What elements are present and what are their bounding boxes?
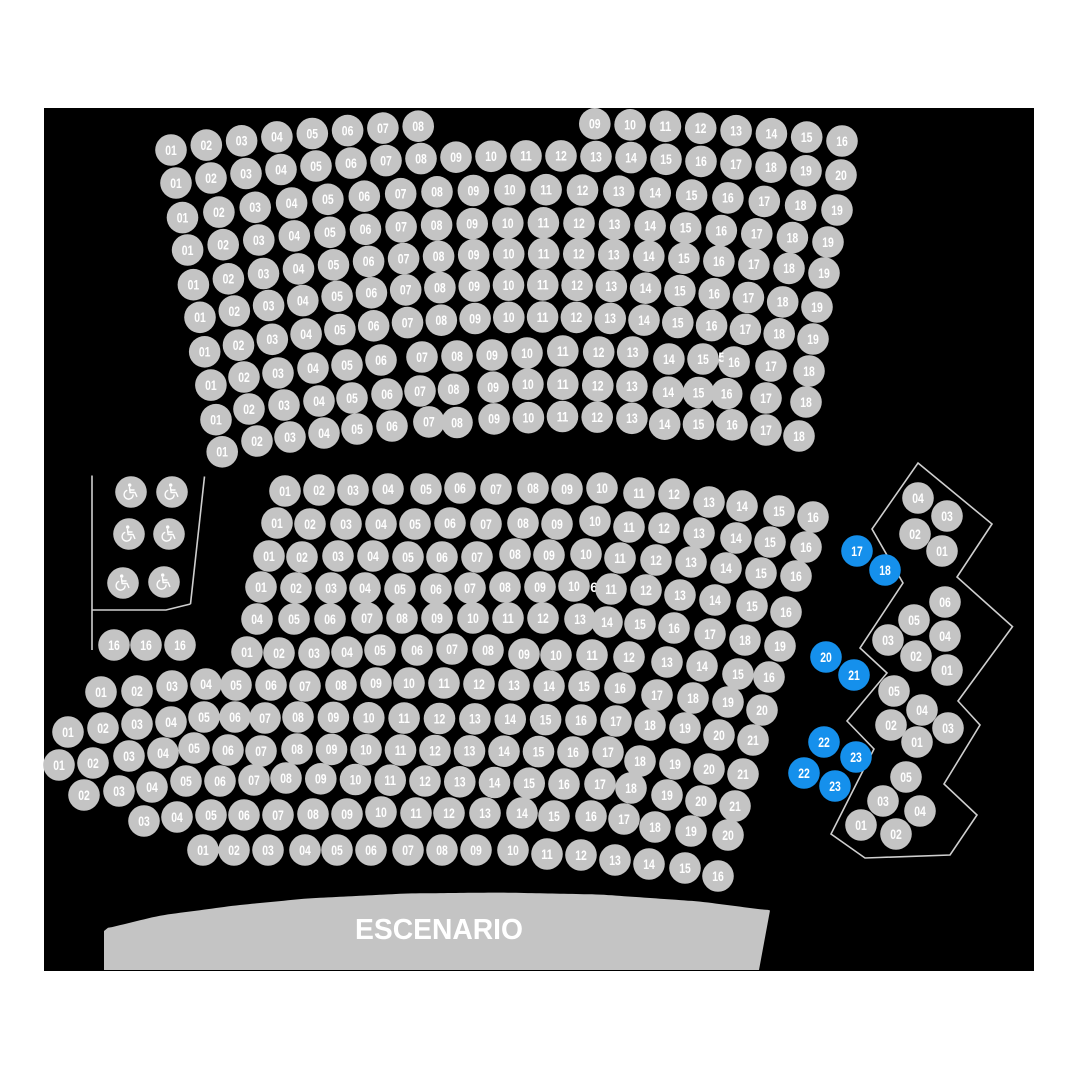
svg-text:06: 06 [359, 189, 371, 204]
svg-text:11: 11 [537, 310, 549, 325]
svg-text:02: 02 [131, 684, 143, 699]
svg-text:15: 15 [732, 667, 744, 682]
svg-text:22: 22 [798, 766, 810, 781]
svg-text:03: 03 [263, 298, 275, 313]
svg-text:08: 08 [509, 547, 521, 562]
svg-text:05: 05 [908, 613, 920, 628]
svg-text:04: 04 [382, 482, 394, 497]
svg-text:16: 16 [695, 154, 707, 169]
svg-text:12: 12 [575, 848, 587, 863]
svg-text:01: 01 [255, 580, 267, 595]
svg-text:06: 06 [366, 286, 378, 301]
svg-text:19: 19 [822, 235, 834, 250]
svg-text:02: 02 [228, 843, 240, 858]
svg-text:14: 14 [643, 249, 655, 264]
svg-text:10: 10 [522, 377, 534, 392]
svg-text:17: 17 [760, 391, 772, 406]
svg-text:21: 21 [747, 733, 759, 748]
svg-text:15: 15 [533, 744, 545, 759]
svg-text:14: 14 [709, 593, 721, 608]
svg-text:16: 16 [108, 638, 120, 653]
svg-text:02: 02 [233, 338, 245, 353]
svg-text:14: 14 [516, 806, 528, 821]
svg-text:07: 07 [423, 415, 435, 430]
svg-text:11: 11 [384, 773, 396, 788]
svg-text:10: 10 [523, 411, 535, 426]
svg-text:10: 10 [375, 805, 387, 820]
svg-text:14: 14 [640, 281, 652, 296]
svg-text:09: 09 [470, 843, 482, 858]
svg-text:09: 09 [466, 217, 478, 232]
svg-text:04: 04 [293, 262, 305, 277]
svg-text:04: 04 [200, 677, 212, 692]
svg-text:13: 13 [626, 379, 638, 394]
svg-text:04: 04 [300, 327, 312, 342]
svg-text:18: 18 [783, 261, 795, 276]
svg-text:15: 15 [693, 417, 705, 432]
svg-text:16: 16 [763, 670, 775, 685]
svg-text:16: 16 [722, 191, 734, 206]
svg-text:04: 04 [341, 645, 353, 660]
svg-text:02: 02 [885, 718, 897, 733]
svg-text:07: 07 [299, 679, 311, 694]
svg-text:07: 07 [395, 187, 407, 202]
svg-text:15: 15 [540, 712, 552, 727]
svg-text:02: 02 [251, 434, 263, 449]
svg-text:11: 11 [438, 676, 450, 691]
svg-text:09: 09 [315, 772, 327, 787]
svg-text:01: 01 [194, 310, 206, 325]
svg-text:15: 15 [773, 504, 785, 519]
svg-text:01: 01 [263, 549, 275, 564]
svg-text:20: 20 [820, 650, 832, 665]
svg-text:05: 05 [310, 159, 322, 174]
svg-text:07: 07 [361, 611, 373, 626]
svg-text:16: 16 [721, 387, 733, 402]
svg-text:08: 08 [335, 678, 347, 693]
svg-text:13: 13 [469, 712, 481, 727]
svg-text:06: 06 [345, 156, 357, 171]
svg-text:04: 04 [271, 130, 283, 145]
svg-text:18: 18 [649, 820, 661, 835]
svg-text:03: 03 [236, 134, 248, 149]
svg-text:12: 12 [573, 247, 585, 262]
svg-text:10: 10 [589, 514, 601, 529]
svg-text:01: 01 [188, 278, 200, 293]
svg-text:03: 03 [278, 398, 290, 413]
svg-text:07: 07 [400, 283, 412, 298]
svg-text:20: 20 [835, 168, 847, 183]
svg-text:02: 02 [296, 550, 308, 565]
svg-text:17: 17 [594, 777, 606, 792]
svg-text:12: 12 [640, 583, 652, 598]
svg-text:08: 08 [499, 580, 511, 595]
svg-text:09: 09 [328, 710, 340, 725]
svg-text:01: 01 [941, 663, 953, 678]
svg-text:05: 05 [402, 550, 414, 565]
svg-text:08: 08 [291, 742, 303, 757]
svg-text:05: 05 [888, 684, 900, 699]
svg-text:11: 11 [538, 216, 550, 231]
svg-text:03: 03 [123, 749, 135, 764]
svg-text:14: 14 [649, 186, 661, 201]
svg-text:03: 03 [258, 266, 270, 281]
svg-text:11: 11 [605, 582, 617, 597]
svg-text:05: 05 [328, 258, 340, 273]
svg-text:15: 15 [697, 352, 709, 367]
svg-text:12: 12 [577, 183, 589, 198]
svg-text:14: 14 [696, 659, 708, 674]
svg-text:13: 13 [627, 345, 639, 360]
svg-text:06: 06 [342, 123, 354, 138]
svg-text:03: 03 [877, 794, 889, 809]
svg-text:02: 02 [97, 721, 109, 736]
svg-text:05: 05 [346, 391, 358, 406]
svg-text:17: 17 [740, 322, 752, 337]
svg-text:03: 03 [138, 814, 150, 829]
svg-text:08: 08 [434, 280, 446, 295]
svg-text:15: 15 [693, 385, 705, 400]
svg-text:18: 18 [795, 198, 807, 213]
svg-text:02: 02 [201, 138, 213, 153]
svg-text:06: 06 [939, 595, 951, 610]
svg-text:01: 01 [170, 176, 182, 191]
svg-text:02: 02 [205, 171, 217, 186]
svg-text:04: 04 [313, 394, 325, 409]
svg-text:06: 06 [365, 843, 377, 858]
svg-text:11: 11 [660, 119, 672, 134]
svg-text:01: 01 [279, 484, 291, 499]
svg-text:13: 13 [609, 853, 621, 868]
svg-text:05: 05 [324, 225, 336, 240]
svg-text:08: 08 [451, 349, 463, 364]
svg-text:08: 08 [451, 415, 463, 430]
svg-text:09: 09 [469, 311, 481, 326]
svg-text:19: 19 [818, 266, 830, 281]
svg-text:01: 01 [62, 725, 74, 740]
svg-text:12: 12 [623, 650, 635, 665]
svg-text:06: 06 [430, 582, 442, 597]
svg-text:06: 06 [444, 516, 456, 531]
svg-text:10: 10 [596, 481, 608, 496]
svg-text:03: 03 [942, 721, 954, 736]
svg-text:12: 12 [592, 379, 604, 394]
svg-text:02: 02 [290, 581, 302, 596]
svg-text:10: 10 [403, 676, 415, 691]
svg-text:02: 02 [910, 649, 922, 664]
svg-text:05: 05 [334, 322, 346, 337]
svg-text:08: 08 [448, 382, 460, 397]
svg-text:05: 05 [230, 678, 242, 693]
svg-text:22: 22 [818, 735, 830, 750]
svg-text:07: 07 [398, 251, 410, 266]
svg-text:06: 06 [238, 808, 250, 823]
svg-text:15: 15 [674, 283, 686, 298]
svg-text:07: 07 [255, 744, 267, 759]
svg-text:15: 15 [801, 130, 813, 145]
svg-text:06: 06 [214, 774, 226, 789]
svg-text:13: 13 [508, 678, 520, 693]
svg-text:13: 13 [674, 588, 686, 603]
svg-text:01: 01 [53, 758, 65, 773]
svg-text:16: 16 [713, 254, 725, 269]
svg-text:20: 20 [713, 728, 725, 743]
svg-text:14: 14 [736, 499, 748, 514]
svg-text:14: 14 [638, 313, 650, 328]
svg-text:17: 17 [602, 745, 614, 760]
svg-text:17: 17 [730, 157, 742, 172]
svg-text:19: 19 [722, 695, 734, 710]
svg-text:07: 07 [272, 808, 284, 823]
svg-text:02: 02 [238, 370, 250, 385]
svg-text:14: 14 [601, 615, 613, 630]
svg-text:15: 15 [679, 861, 691, 876]
svg-text:08: 08 [431, 218, 443, 233]
svg-text:03: 03 [284, 430, 296, 445]
svg-text:12: 12 [593, 345, 605, 360]
svg-text:08: 08 [396, 611, 408, 626]
svg-text:14: 14 [766, 127, 778, 142]
svg-text:08: 08 [431, 185, 443, 200]
svg-text:12: 12 [591, 410, 603, 425]
svg-text:15: 15 [660, 152, 672, 167]
svg-text:08: 08 [517, 516, 529, 531]
svg-text:16: 16 [726, 418, 738, 433]
svg-text:15: 15 [686, 188, 698, 203]
svg-text:17: 17 [704, 627, 716, 642]
svg-text:12: 12 [443, 806, 455, 821]
svg-text:10: 10 [580, 547, 592, 562]
svg-text:05: 05 [409, 517, 421, 532]
svg-text:07: 07 [402, 843, 414, 858]
svg-text:02: 02 [890, 827, 902, 842]
svg-text:08: 08 [307, 807, 319, 822]
svg-text:07: 07 [490, 482, 502, 497]
svg-text:12: 12 [429, 743, 441, 758]
svg-text:19: 19 [811, 300, 823, 315]
svg-text:03: 03 [340, 517, 352, 532]
svg-text:12: 12 [668, 487, 680, 502]
svg-text:06: 06 [368, 319, 380, 334]
svg-text:07: 07 [248, 773, 260, 788]
svg-text:16: 16 [668, 621, 680, 636]
svg-text:01: 01 [241, 645, 253, 660]
svg-text:19: 19 [669, 757, 681, 772]
svg-text:06: 06 [454, 481, 466, 496]
svg-text:16: 16 [140, 638, 152, 653]
svg-text:01: 01 [95, 685, 107, 700]
svg-text:14: 14 [504, 712, 516, 727]
svg-text:08: 08 [412, 119, 424, 134]
svg-text:12: 12 [473, 677, 485, 692]
svg-text:14: 14 [663, 385, 675, 400]
svg-text:10: 10 [568, 579, 580, 594]
svg-text:11: 11 [623, 520, 635, 535]
svg-text:19: 19 [800, 164, 812, 179]
svg-text:08: 08 [436, 313, 448, 328]
svg-text:19: 19 [807, 332, 819, 347]
svg-text:18: 18 [793, 429, 805, 444]
svg-text:16: 16 [712, 869, 724, 884]
svg-text:18: 18 [687, 691, 699, 706]
svg-text:03: 03 [166, 679, 178, 694]
svg-text:18: 18 [644, 718, 656, 733]
svg-text:10: 10 [485, 149, 497, 164]
svg-text:11: 11 [633, 486, 645, 501]
svg-text:10: 10 [503, 310, 515, 325]
svg-text:01: 01 [911, 735, 923, 750]
svg-text:15: 15 [634, 617, 646, 632]
svg-text:14: 14 [489, 775, 501, 790]
svg-text:20: 20 [722, 828, 734, 843]
svg-text:10: 10 [504, 183, 516, 198]
svg-text:13: 13 [464, 744, 476, 759]
svg-text:13: 13 [606, 279, 618, 294]
svg-text:15: 15 [578, 679, 590, 694]
svg-text:07: 07 [395, 220, 407, 235]
svg-text:01: 01 [199, 345, 211, 360]
svg-text:12: 12 [650, 553, 662, 568]
svg-text:03: 03 [347, 483, 359, 498]
svg-text:04: 04 [157, 746, 169, 761]
svg-text:16: 16 [716, 223, 728, 238]
svg-text:04: 04 [912, 491, 924, 506]
svg-text:03: 03 [325, 581, 337, 596]
svg-text:18: 18 [625, 781, 637, 796]
svg-text:04: 04 [299, 843, 311, 858]
svg-text:01: 01 [210, 413, 222, 428]
svg-text:15: 15 [680, 221, 692, 236]
svg-text:13: 13 [590, 149, 602, 164]
svg-text:11: 11 [538, 246, 550, 261]
svg-text:10: 10 [363, 711, 375, 726]
svg-text:09: 09 [589, 117, 601, 132]
svg-text:10: 10 [624, 118, 636, 133]
svg-text:10: 10 [502, 216, 514, 231]
svg-text:17: 17 [760, 423, 772, 438]
svg-text:05: 05 [180, 774, 192, 789]
svg-text:09: 09 [431, 611, 443, 626]
svg-text:13: 13 [685, 555, 697, 570]
svg-text:04: 04 [297, 293, 309, 308]
svg-text:15: 15 [746, 599, 758, 614]
svg-text:16: 16 [567, 745, 579, 760]
svg-text:05: 05 [394, 582, 406, 597]
svg-text:08: 08 [436, 843, 448, 858]
svg-text:01: 01 [855, 818, 867, 833]
svg-text:12: 12 [555, 149, 567, 164]
svg-text:02: 02 [313, 483, 325, 498]
svg-text:04: 04 [914, 804, 926, 819]
svg-text:02: 02 [304, 517, 316, 532]
svg-text:16: 16 [807, 510, 819, 525]
svg-text:04: 04 [171, 810, 183, 825]
svg-text:11: 11 [395, 743, 407, 758]
svg-text:18: 18 [800, 395, 812, 410]
svg-text:02: 02 [87, 756, 99, 771]
svg-text:13: 13 [626, 411, 638, 426]
svg-text:09: 09 [561, 482, 573, 497]
svg-text:03: 03 [941, 509, 953, 524]
svg-text:13: 13 [454, 775, 466, 790]
svg-text:09: 09 [468, 183, 480, 198]
svg-text:12: 12 [695, 121, 707, 136]
svg-text:03: 03 [253, 233, 265, 248]
svg-text:15: 15 [755, 566, 767, 581]
svg-text:05: 05 [351, 422, 363, 437]
svg-text:20: 20 [695, 794, 707, 809]
svg-text:17: 17 [651, 688, 663, 703]
svg-text:11: 11 [502, 611, 514, 626]
svg-text:08: 08 [280, 771, 292, 786]
svg-text:15: 15 [523, 776, 535, 791]
svg-text:09: 09 [534, 580, 546, 595]
svg-text:05: 05 [341, 358, 353, 373]
svg-text:07: 07 [416, 350, 428, 365]
svg-text:10: 10 [550, 648, 562, 663]
svg-text:18: 18 [739, 633, 751, 648]
svg-text:12: 12 [434, 711, 446, 726]
svg-text:06: 06 [386, 419, 398, 434]
svg-text:04: 04 [318, 426, 330, 441]
svg-text:01: 01 [197, 843, 209, 858]
svg-text:09: 09 [450, 150, 462, 165]
svg-text:13: 13 [604, 311, 616, 326]
svg-text:03: 03 [262, 843, 274, 858]
svg-text:12: 12 [537, 611, 549, 626]
svg-text:02: 02 [223, 272, 235, 287]
svg-text:02: 02 [909, 527, 921, 542]
svg-text:13: 13 [608, 248, 620, 263]
svg-text:02: 02 [243, 402, 255, 417]
svg-text:14: 14 [643, 857, 655, 872]
svg-text:19: 19 [679, 721, 691, 736]
svg-text:09: 09 [370, 676, 382, 691]
svg-text:16: 16 [558, 777, 570, 792]
svg-text:06: 06 [375, 353, 387, 368]
svg-text:10: 10 [503, 278, 515, 293]
svg-text:08: 08 [292, 710, 304, 725]
svg-text:15: 15 [678, 251, 690, 266]
svg-text:06: 06 [222, 743, 234, 758]
svg-text:14: 14 [498, 744, 510, 759]
svg-text:18: 18 [803, 364, 815, 379]
svg-text:09: 09 [486, 348, 498, 363]
svg-text:04: 04 [251, 612, 263, 627]
svg-text:18: 18 [879, 563, 891, 578]
svg-text:07: 07 [471, 550, 483, 565]
svg-text:13: 13 [613, 184, 625, 199]
svg-text:07: 07 [377, 121, 389, 136]
svg-text:16: 16 [614, 681, 626, 696]
svg-text:16: 16 [836, 134, 848, 149]
svg-text:01: 01 [165, 143, 177, 158]
svg-text:14: 14 [644, 219, 656, 234]
svg-text:03: 03 [308, 646, 320, 661]
svg-text:17: 17 [618, 812, 630, 827]
svg-text:20: 20 [703, 762, 715, 777]
svg-text:13: 13 [479, 806, 491, 821]
svg-text:10: 10 [507, 843, 519, 858]
svg-text:18: 18 [765, 160, 777, 175]
svg-text:02: 02 [78, 788, 90, 803]
svg-text:06: 06 [381, 387, 393, 402]
svg-text:13: 13 [730, 124, 742, 139]
svg-text:11: 11 [557, 344, 569, 359]
svg-text:08: 08 [527, 481, 539, 496]
svg-text:16: 16 [706, 318, 718, 333]
svg-text:13: 13 [609, 217, 621, 232]
